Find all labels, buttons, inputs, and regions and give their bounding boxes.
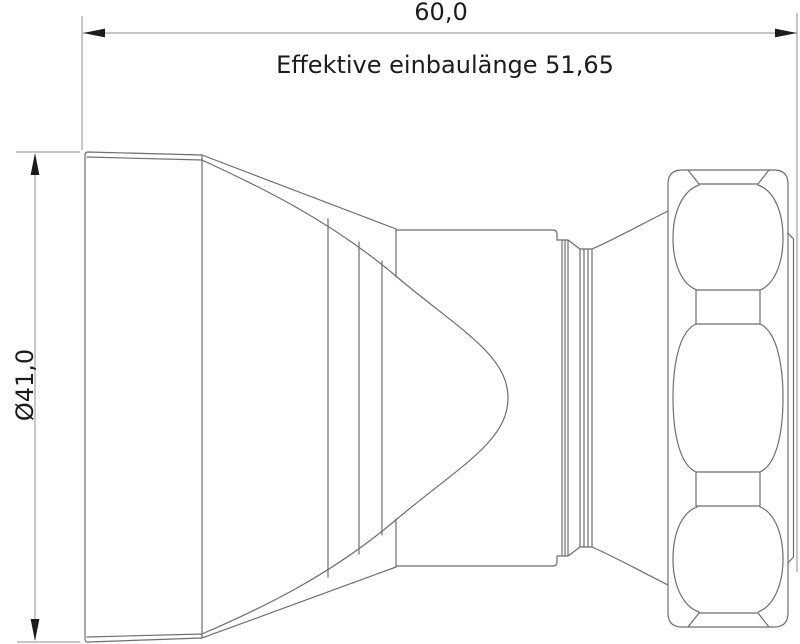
overall-length-value: 60,0 — [414, 0, 467, 26]
groove-ring-lines — [562, 240, 592, 556]
technical-drawing-canvas: 60,0 Effektive einbaulänge 51,65 Ø41,0 — [0, 0, 800, 644]
arrowhead-down-icon — [31, 619, 40, 641]
nut-waist-band-1 — [696, 290, 760, 324]
technical-drawing-page: 60,0 Effektive einbaulänge 51,65 Ø41,0 — [0, 0, 800, 644]
coupling-nut — [668, 170, 788, 627]
nut-facet-middle — [673, 324, 783, 472]
nut-outline — [668, 170, 788, 627]
transition-curve-top — [592, 211, 668, 249]
dimension-diameter: Ø41,0 — [11, 152, 80, 642]
bell-cone-top-edge — [202, 155, 396, 229]
diameter-value: Ø41,0 — [11, 349, 39, 421]
bell-rim-inner-edges — [87, 157, 202, 637]
bell-flare-curve — [202, 160, 508, 634]
nut-waist-band-2 — [696, 472, 760, 506]
cylinder-bottom-edge — [396, 556, 557, 566]
nut-top-band — [688, 170, 769, 184]
nut-facet-top — [673, 185, 783, 290]
nut-bottom-band — [688, 613, 769, 627]
transition-curve-bottom — [592, 547, 668, 585]
arrowhead-right-icon — [775, 29, 797, 38]
bell-contour-lines — [328, 219, 382, 577]
arrowhead-up-icon — [31, 153, 40, 175]
arrowhead-left-icon — [83, 29, 105, 38]
effective-length-label: Effektive einbaulänge 51,65 — [276, 51, 614, 79]
throat-cylinder — [396, 211, 668, 585]
rear-cylinder-edge — [788, 233, 794, 563]
cylinder-top-edge — [396, 230, 557, 240]
bell-cone-bottom-edge — [202, 567, 396, 638]
rear-cylinder — [788, 233, 794, 563]
bell-rim-outline — [85, 152, 202, 642]
horn-bell — [85, 152, 508, 642]
nut-facet-bottom — [673, 507, 783, 612]
